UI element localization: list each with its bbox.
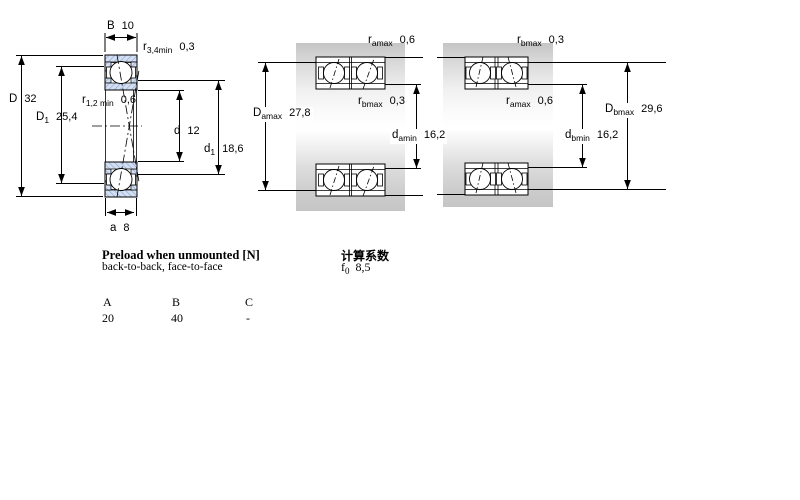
preload-value-A: 20 [102,311,114,326]
bearing-datasheet-figure: B10 r3,4min0,3 D32 D125,4 r1,2 min0,6 d1… [0,0,800,500]
dim-value: 8 [123,222,129,234]
dim-value: 0,3 [390,95,405,107]
dim-subscript: bmax [362,99,383,109]
dim-value: 25,4 [56,111,77,123]
dim-label-Damax: Damax27,8 [251,107,313,122]
dim-subscript: 1 [44,115,49,125]
dim-value: 0,3 [549,34,564,46]
dim-subscript: amin [398,133,416,143]
dim-value: 12 [187,125,199,137]
factor-value: 8,5 [356,260,371,274]
dim-symbol: a [110,222,116,234]
dim-value: 0,6 [400,34,415,46]
dim-subscript: amax [372,38,393,48]
dim-value: 0,6 [538,95,553,107]
dim-label-rbmax-right: rbmax0,3 [517,34,564,49]
dim-subscript: amax [510,99,531,109]
dim-label-ramax-right: ramax0,6 [506,95,553,110]
dim-label-Dbmax: Dbmax29,6 [603,103,665,118]
dim-subscript: amax [261,111,282,121]
preload-subtitle: back-to-back, face-to-face [102,261,223,273]
dim-label-a: a8 [110,222,130,237]
dim-label-r34min: r3,4min0,3 [143,41,195,56]
dim-value: 27,8 [289,107,310,119]
dim-label-d: d12 [174,125,200,140]
dim-label-B: B10 [107,20,134,35]
preload-col-header-B: B [172,295,180,310]
dim-subscript: bmax [521,38,542,48]
dim-label-D: D32 [9,93,37,108]
dim-value: 29,6 [641,103,662,115]
dim-label-d1: d118,6 [204,143,244,158]
dim-value: 32 [24,93,36,105]
dim-value: 16,2 [597,129,618,141]
dim-value: 18,6 [222,143,243,155]
dim-label-r12min: r1,2 min0,6 [82,94,136,109]
dim-value: 0,3 [179,41,194,53]
dim-label-damin: damin16,2 [390,129,447,144]
dim-label-ramax-middle: ramax0,6 [368,34,415,49]
dim-subscript: bmax [613,107,634,117]
preload-col-header-A: A [103,295,112,310]
dim-subscript: 1,2 min [86,98,114,108]
left-bearing-section [92,55,142,197]
dim-label-dbmin: dbmin16,2 [563,129,620,144]
dim-symbol: B [107,20,115,32]
preload-col-header-C: C [245,295,253,310]
dim-label-D1: D125,4 [36,111,77,126]
dim-value: 16,2 [424,129,445,141]
factor-subscript: 0 [345,266,350,276]
dim-subscript: 3,4min [147,45,173,55]
dim-symbol: D [9,93,17,105]
dim-subscript: 1 [210,147,215,157]
dim-symbol: d [174,125,180,137]
factor-f0: f08,5 [341,260,371,276]
dim-subscript: bmin [571,133,589,143]
preload-value-C: - [246,311,250,326]
preload-value-B: 40 [171,311,183,326]
dim-value: 0,6 [121,94,136,106]
dim-value: 10 [122,20,134,32]
dim-label-rbmax-middle: rbmax0,3 [358,95,405,110]
